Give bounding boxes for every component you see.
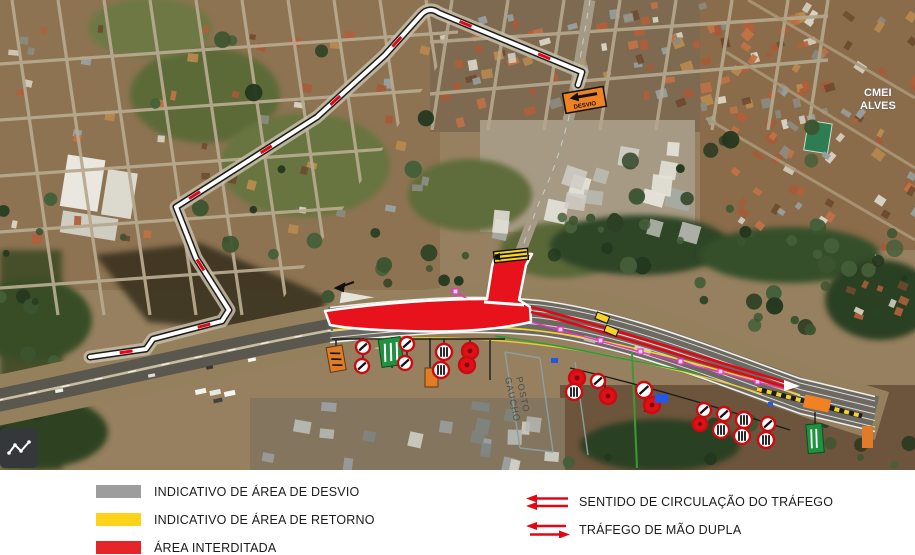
map-canvas: DESVIO <box>0 0 915 470</box>
legend-label: INDICATIVO DE ÁREA DE DESVIO <box>154 485 359 499</box>
interditada-area-swatch <box>96 541 141 554</box>
legend-item-desvio: INDICATIVO DE ÁREA DE DESVIO <box>96 485 375 498</box>
traffic-detour-plan: DESVIO <box>0 0 915 555</box>
retorno-area-swatch <box>96 513 141 526</box>
desvio-area-swatch <box>96 485 141 498</box>
legend-label: SENTIDO DE CIRCULAÇÃO DO TRÁFEGO <box>579 495 833 509</box>
two-way-arrows-icon <box>524 522 570 538</box>
traffic-direction-arrows-icon <box>524 494 570 510</box>
legend-label: TRÁFEGO DE MÃO DUPLA <box>579 523 741 537</box>
legend-label: INDICATIVO DE ÁREA DE RETORNO <box>154 513 375 527</box>
legend-item-sentido: SENTIDO DE CIRCULAÇÃO DO TRÁFEGO <box>524 494 833 510</box>
cmei-label-line2: ALVES <box>860 100 896 112</box>
polyline-icon <box>6 437 32 459</box>
legend-item-mao-dupla: TRÁFEGO DE MÃO DUPLA <box>524 522 833 538</box>
satellite-map[interactable]: DESVIO <box>0 0 915 470</box>
map-path-tool-button[interactable] <box>0 428 38 468</box>
legend-arrows: SENTIDO DE CIRCULAÇÃO DO TRÁFEGO TRÁFEGO… <box>524 494 833 550</box>
cmei-label-line1: CMEI <box>864 87 892 99</box>
legend-item-retorno: INDICATIVO DE ÁREA DE RETORNO <box>96 513 375 526</box>
legend-item-interditada: ÁREA INTERDITADA <box>96 541 375 554</box>
legend: INDICATIVO DE ÁREA DE DESVIO INDICATIVO … <box>0 470 915 555</box>
legend-areas: INDICATIVO DE ÁREA DE DESVIO INDICATIVO … <box>96 485 375 555</box>
legend-label: ÁREA INTERDITADA <box>154 541 276 555</box>
